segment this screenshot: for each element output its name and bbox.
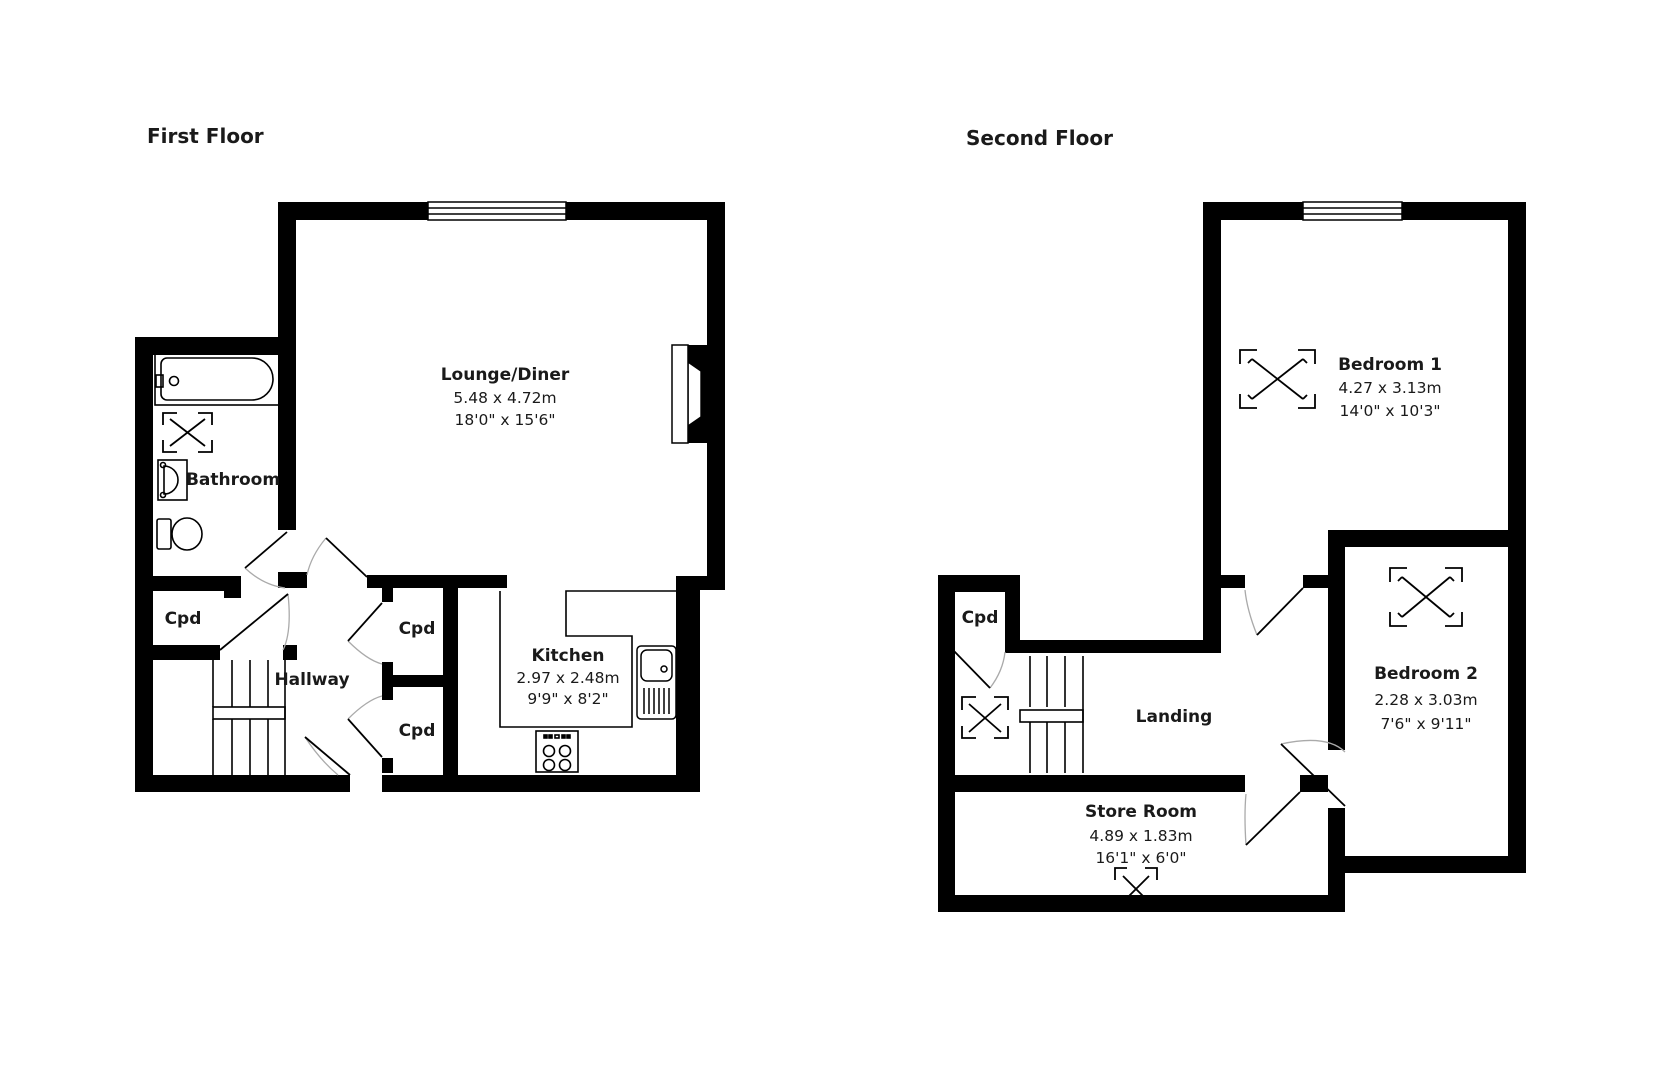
- floorplan-drawing: [0, 0, 1663, 1080]
- room-dim-store-m: 4.89 x 1.83m: [1089, 827, 1192, 845]
- room-label-store: Store Room: [1085, 802, 1197, 822]
- room-label-lounge: Lounge/Diner: [441, 365, 570, 385]
- bedroom1-window-icon: [1303, 202, 1402, 220]
- room-label-kitchen: Kitchen: [532, 646, 605, 666]
- room-label-cpd-second: Cpd: [962, 608, 999, 628]
- floorplan-page: First Floor Second Floor Lounge/Diner 5.…: [0, 0, 1663, 1080]
- basin-icon: [158, 460, 187, 500]
- kitchen-sink-icon: [637, 646, 676, 719]
- room-dim-kitchen-ft: 9'9" x 8'2": [527, 690, 608, 708]
- room-dim-bedroom1-ft: 14'0" x 10'3": [1340, 402, 1441, 420]
- room-label-cpd-mid-lower: Cpd: [399, 721, 436, 741]
- bed-icon-bedroom1: [1240, 350, 1315, 408]
- stove-icon: [536, 731, 578, 772]
- bed-icon-bedroom2: [1390, 568, 1462, 626]
- lounge-window-icon: [428, 202, 566, 220]
- bath-icon: [155, 353, 283, 405]
- room-label-bathroom: Bathroom: [186, 470, 280, 490]
- second-floor-plan: [938, 202, 1526, 912]
- toilet-icon: [157, 518, 202, 550]
- shower-icon-second-floor: [962, 697, 1008, 738]
- room-label-bedroom2: Bedroom 2: [1374, 664, 1478, 684]
- room-label-hallway: Hallway: [274, 670, 349, 690]
- room-label-bedroom1: Bedroom 1: [1338, 355, 1442, 375]
- second-floor-title: Second Floor: [966, 126, 1113, 150]
- room-label-cpd-mid-upper: Cpd: [399, 619, 436, 639]
- room-dim-kitchen-m: 2.97 x 2.48m: [516, 669, 619, 687]
- first-floor-title: First Floor: [147, 124, 264, 148]
- first-floor-doors: [220, 532, 382, 775]
- second-floor-walls: [938, 202, 1526, 912]
- room-dim-bedroom1-m: 4.27 x 3.13m: [1338, 379, 1441, 397]
- first-floor-plan: [135, 202, 725, 792]
- room-label-cpd-left: Cpd: [165, 609, 202, 629]
- room-dim-lounge-m: 5.48 x 4.72m: [453, 389, 556, 407]
- shower-icon: [163, 413, 212, 452]
- room-dim-bedroom2-m: 2.28 x 3.03m: [1374, 691, 1477, 709]
- stairs-icon-second-floor: [1020, 656, 1083, 773]
- room-label-landing: Landing: [1136, 707, 1213, 727]
- room-dim-bedroom2-ft: 7'6" x 9'11": [1380, 715, 1471, 733]
- room-dim-lounge-ft: 18'0" x 15'6": [455, 411, 556, 429]
- room-dim-store-ft: 16'1" x 6'0": [1095, 849, 1186, 867]
